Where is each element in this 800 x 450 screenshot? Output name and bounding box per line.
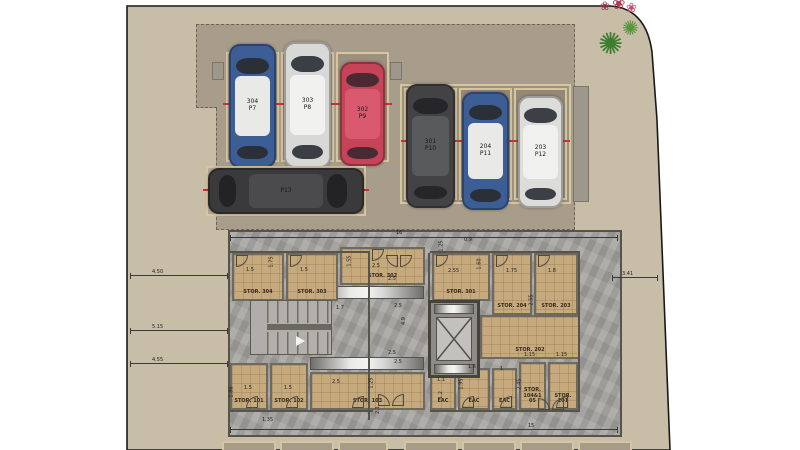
dimension-value: 1.5 [246,267,254,273]
room-label: STOR. 301 [435,290,487,296]
parking-stall-partial [280,441,334,450]
dimension-value: 1.55 [347,255,353,266]
car-roof: 204 P11 [468,123,504,180]
dimension-line [612,277,658,278]
dimension-value: 1.7 [336,305,344,311]
parking-stall-partial [578,441,632,450]
room-label: STOR. 203 [537,304,575,310]
dimension-value: 2.5 [372,263,380,269]
parking-stall-partial [462,441,516,450]
wall-stub [573,86,589,202]
car-roof: 304 P7 [235,76,271,136]
dimension-line [130,275,228,276]
stall-number: P13 [280,188,291,195]
dimension-value: 5.15 [152,324,163,330]
stair-landing-divider [267,324,331,330]
dimension-value: 2.45 [517,378,523,389]
dimension-value: 2.55 [529,294,535,305]
dimension-value: 1.25 [369,377,375,388]
windshield [291,56,325,72]
dimension-value: 1.75 [269,256,275,267]
dimension-value: 1.6 [468,364,476,370]
wall-segment [228,410,373,412]
stair-flight [267,301,331,323]
dimension-value: 4.55 [152,357,163,363]
bush-icon: ✺ [598,30,623,60]
dimension-line [230,237,618,238]
room-label: STOR. 204 [495,304,529,310]
windshield [469,105,503,120]
dimension-value: 1.95 [459,378,465,389]
elevator-cab [436,317,472,361]
dimension-value: 3.41 [622,271,633,277]
dimension-value: 1.1 [437,377,445,383]
flower-icon: ❀ [626,2,637,15]
bush-icon: ✺ [622,18,639,38]
elevator-door-top [434,304,474,314]
car-top-view: 303 P8 [284,42,331,168]
dimension-value: 1.15 [556,352,567,358]
windshield [327,174,347,207]
dimension-value: 1.60 [477,258,483,269]
dimension-value: 2.5 [388,276,396,282]
wall-stub [212,62,224,80]
flower-icon: ❀ [600,0,610,12]
parking-stall-partial [404,441,458,450]
wall-segment [368,253,370,420]
wall-segment [430,251,580,253]
dimension-line [130,330,228,331]
car-roof: 301 P10 [412,116,449,176]
elevator-x-icon [437,318,471,360]
wall-segment [228,251,370,253]
car-roof: 203 P12 [523,125,557,179]
rear-window [470,189,502,202]
rear-window [347,147,378,158]
dimension-value: 2.5 [388,350,396,356]
dimension-value: 1.75 [506,268,517,274]
car-top-view: P13 [208,168,364,214]
car-roof: 303 P8 [290,75,326,135]
wall-stub [390,62,402,80]
dimension-value: 1.8 [548,268,556,274]
dimension-value: 1.25 [439,240,445,251]
dimension-value: 1.15 [524,352,535,358]
dimension-value: 2.5 [394,359,402,365]
metal-door-strip [310,357,424,370]
wall-segment [428,253,430,302]
car-top-view: 204 P11 [462,92,509,210]
rear-window [237,146,269,160]
dimension-value: 2.5 [394,303,402,309]
room-label: EAC [433,399,453,405]
red-tick-icon [333,103,340,105]
wall-segment [578,253,580,410]
rear-window [414,186,447,200]
stall-number: P10 [425,146,436,153]
dimension-value: 2.55 [448,268,459,274]
dimension-value: 2.1 [375,406,381,414]
stall-number: P12 [535,152,546,159]
dimension-value: 16 [396,230,402,236]
dimension-value: 2.5 [332,379,340,385]
room-label: STOR. 303 [289,290,335,296]
parking-stall-partial [222,441,276,450]
flower-icon: ❀ [612,0,625,12]
room-label: STOR. 302 [343,274,422,280]
dimension-value: 1.5 [244,385,252,391]
dimension-value: 1.5 [300,267,308,273]
dimension-value: 1.5 [284,385,292,391]
dimension-value: 1.86 [229,386,235,397]
dimension-value: 0.9 [464,237,472,243]
car-roof: 302 P9 [345,89,379,139]
staircase [250,300,332,355]
rear-window [219,175,236,206]
rear-window [292,145,324,159]
car-top-view: 302 P9 [340,62,385,166]
stall-number: P11 [480,151,491,158]
dimension-value: 4.50 [152,269,163,275]
red-tick-icon [385,103,392,105]
dimension-value: 1.35 [262,417,273,423]
car-top-view: 304 P7 [229,44,276,168]
windshield [236,58,270,74]
stall-number: P7 [249,106,256,113]
dimension-value: 4.9 [401,317,407,325]
stall-number: P8 [304,105,311,112]
windshield [413,98,448,114]
dimension-value: 15 [528,423,534,429]
driveway-edge [196,107,217,108]
dimension-line [130,363,228,364]
rear-window [525,188,556,200]
car-top-view: 301 P10 [406,84,455,208]
parking-stall-partial [338,441,388,450]
car-roof: P13 [249,174,324,209]
dimension-value: 1.2 [438,391,444,399]
red-tick-icon [563,140,570,142]
stair-direction-arrow-icon [296,336,305,346]
dimension-line [230,429,618,430]
windshield [524,108,556,123]
car-top-view: 203 P12 [518,96,563,208]
stall-number: P9 [359,114,366,121]
floor-plan-canvas: 304 P7 303 P8 [0,0,800,450]
red-tick-icon [511,140,518,142]
wall-segment [430,410,580,412]
windshield [346,73,378,87]
parking-stall-partial [520,441,574,450]
dimension-value: 1 [500,366,503,372]
room-label: STOR. 304 [235,290,281,296]
